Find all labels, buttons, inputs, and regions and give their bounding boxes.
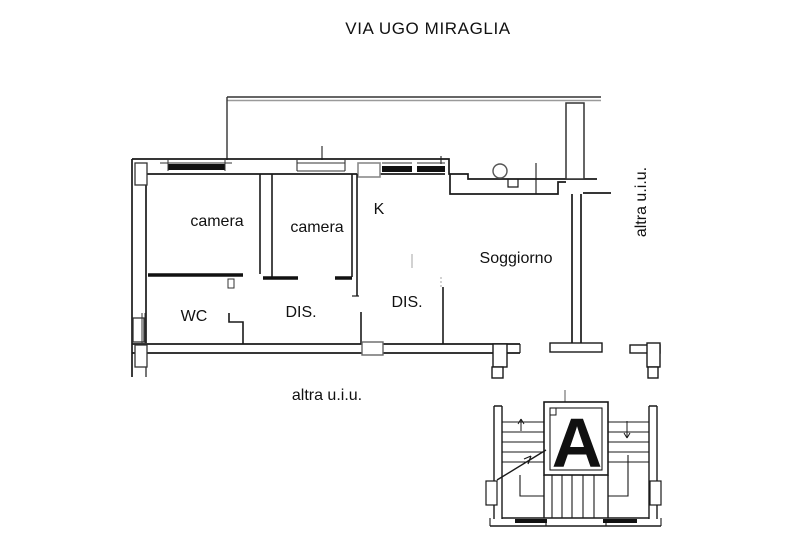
street-boundary-lines	[227, 97, 601, 164]
room-label-soggiorno: Soggiorno	[480, 250, 553, 267]
stair-treads-left	[502, 422, 544, 462]
door-sill-left	[515, 519, 547, 523]
window-camera-1	[168, 164, 225, 170]
interior-walls	[229, 174, 443, 344]
annotation-altra-uiu-right: altra u.i.u.	[633, 167, 650, 237]
wc-door-jamb	[228, 279, 234, 288]
left-wall-pilasters	[133, 163, 147, 367]
labels: VIA UGO MIRAGLIA camera camera K Soggior…	[181, 19, 650, 482]
room-label-dis-1: DIS.	[285, 304, 316, 321]
room-label-camera-2: camera	[290, 219, 343, 236]
door-sill-right	[603, 519, 637, 523]
terrace-pillar	[566, 103, 584, 179]
balcony-door-box	[358, 163, 380, 177]
corridor-wall-band	[148, 275, 352, 278]
window-camera-2	[297, 159, 345, 171]
room-label-wc: WC	[181, 308, 208, 325]
window-kitchen-1	[382, 166, 412, 172]
bottom-piers	[492, 343, 660, 378]
stair-direction-arrow	[497, 450, 546, 480]
window-kitchen-2	[417, 166, 445, 172]
floor-plan-page: VIA UGO MIRAGLIA camera camera K Soggior…	[0, 0, 786, 553]
floor-plan-drawing: VIA UGO MIRAGLIA camera camera K Soggior…	[0, 0, 786, 553]
entrance-door	[362, 342, 383, 355]
room-label-kitchen: K	[374, 201, 385, 218]
annotation-altra-uiu-bottom: altra u.i.u.	[292, 387, 362, 404]
terrace-circle	[493, 164, 507, 178]
room-label-camera-1: camera	[190, 213, 243, 230]
street-title: VIA UGO MIRAGLIA	[345, 19, 511, 38]
stairwell-letter: A	[552, 404, 603, 482]
faint-marks	[412, 254, 441, 287]
room-label-dis-2: DIS.	[391, 294, 422, 311]
